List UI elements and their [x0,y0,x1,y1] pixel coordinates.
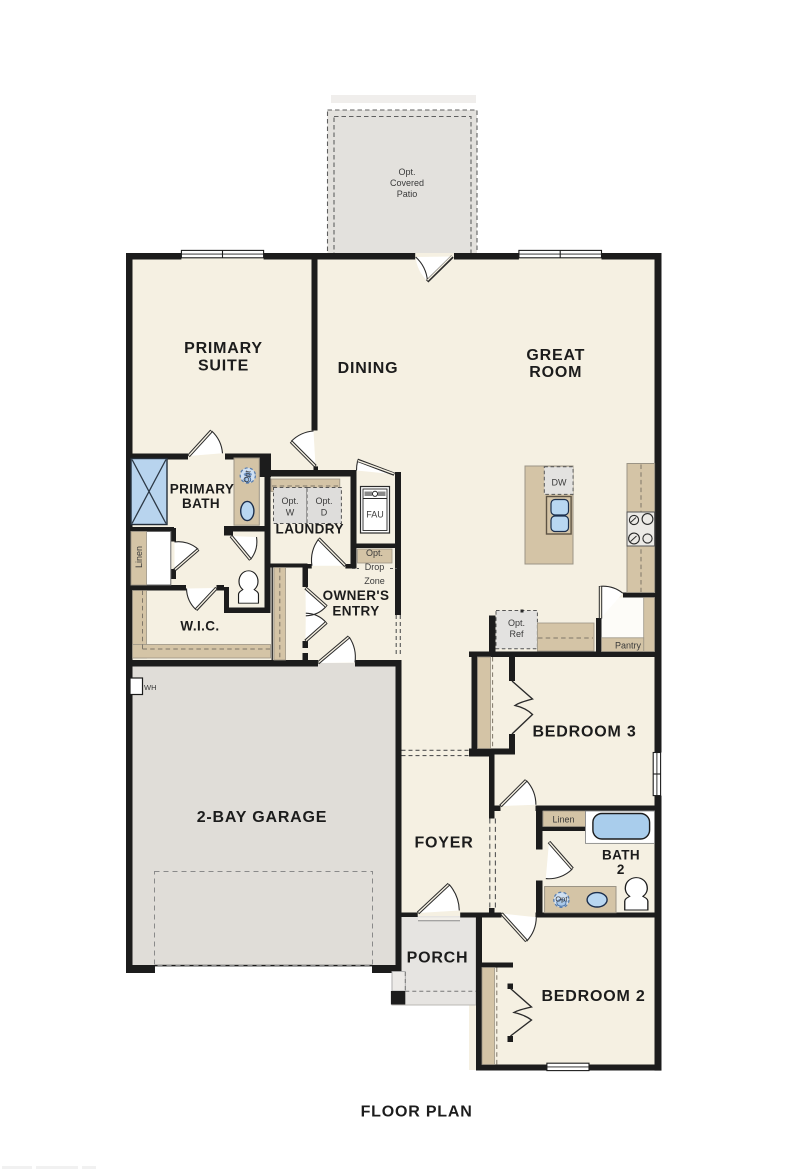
svg-text:W: W [286,508,295,518]
svg-text:ROOM: ROOM [529,364,582,381]
svg-text:DINING: DINING [338,360,399,377]
svg-text:BATH: BATH [182,496,220,511]
svg-text:2: 2 [617,862,625,877]
svg-text:PRIMARY: PRIMARY [170,482,235,497]
svg-text:Ref: Ref [509,629,524,639]
svg-text:Patio: Patio [397,189,418,199]
svg-text:Drop: Drop [365,562,385,572]
svg-text:PORCH: PORCH [407,950,469,967]
svg-text:FLOOR PLAN: FLOOR PLAN [361,1104,473,1121]
svg-text:Opt: Opt [555,895,568,904]
svg-text:WH: WH [144,683,157,692]
svg-text:W.I.C.: W.I.C. [180,619,219,634]
svg-text:2-BAY GARAGE: 2-BAY GARAGE [197,809,328,826]
svg-text:Linen: Linen [134,546,144,568]
svg-text:Opt.: Opt. [508,618,525,628]
svg-text:SUITE: SUITE [198,358,249,375]
svg-text:BEDROOM 2: BEDROOM 2 [541,988,645,1005]
svg-text:Opt.: Opt. [398,167,415,177]
svg-text:BATH: BATH [602,848,640,863]
svg-text:BEDROOM 3: BEDROOM 3 [532,724,636,741]
svg-text:FOYER: FOYER [414,834,473,851]
svg-text:Opt.: Opt. [281,496,298,506]
svg-text:Covered: Covered [390,178,424,188]
svg-text:Linen: Linen [552,815,574,825]
svg-text:Pantry: Pantry [615,641,642,651]
svg-text:Opt.: Opt. [315,496,332,506]
svg-text:D: D [321,508,328,518]
svg-text:DW: DW [552,478,567,488]
svg-text:OWNER'S: OWNER'S [323,588,390,603]
svg-text:Zone: Zone [364,576,385,586]
svg-text:GREAT: GREAT [526,347,585,364]
svg-text:FAU: FAU [366,510,384,520]
svg-text:PRIMARY: PRIMARY [184,340,263,357]
svg-text:ENTRY: ENTRY [332,604,379,619]
svg-text:LAUNDRY: LAUNDRY [276,522,344,537]
svg-text:Opt.: Opt. [366,548,383,558]
